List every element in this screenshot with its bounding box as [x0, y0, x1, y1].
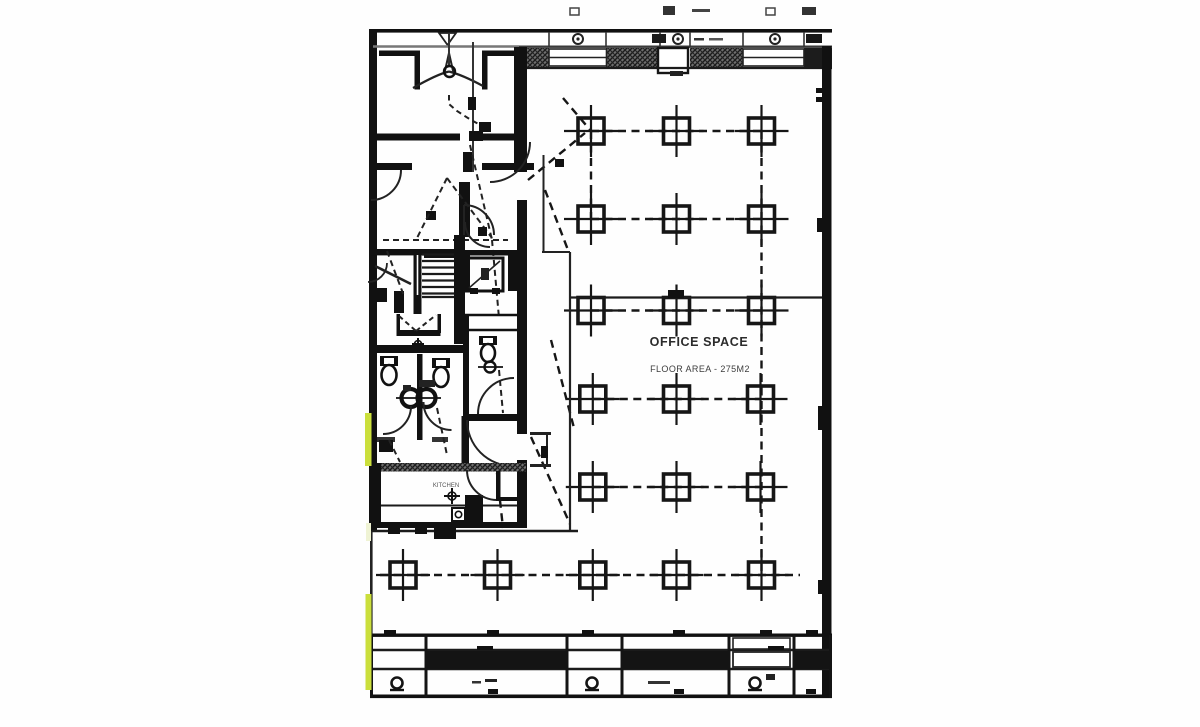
svg-text:KITCHEN: KITCHEN — [433, 483, 459, 489]
svg-text:FLOOR AREA - 275M2: FLOOR AREA - 275M2 — [650, 364, 750, 374]
svg-text:OFFICE SPACE: OFFICE SPACE — [650, 335, 749, 349]
